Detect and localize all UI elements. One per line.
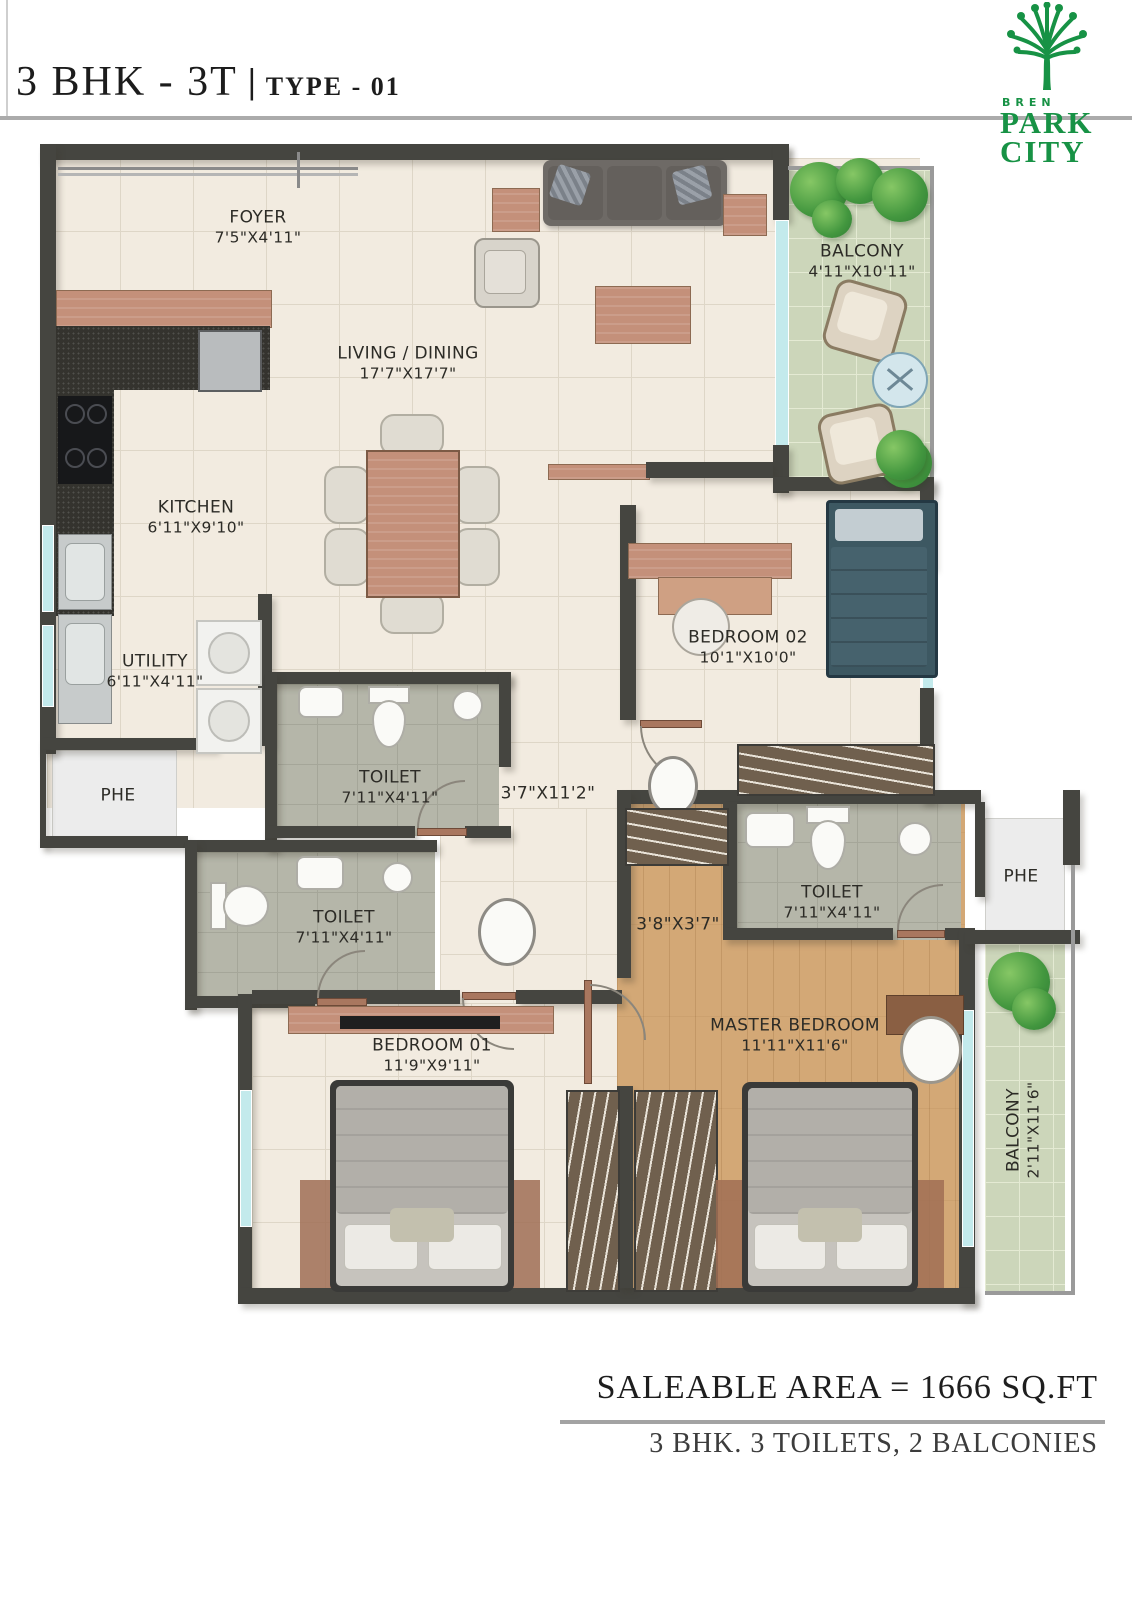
entry-slider-leaf (58, 173, 358, 176)
vanity-basin (900, 1016, 962, 1084)
rail-balcony2-right (1071, 865, 1075, 1293)
label-bedroom01: BEDROOM 0111'9"X9'11" (372, 1036, 492, 1077)
dining-chair (454, 466, 500, 524)
bed-bedroom01 (330, 1080, 514, 1292)
wall-top (40, 144, 789, 160)
toilet2-sink (296, 856, 344, 890)
label-balcony1: BALCONY4'11"X10'11" (808, 242, 915, 283)
tree-icon (995, 2, 1099, 90)
toilet3-shower-drain (898, 822, 932, 856)
wall-toilet1-right (499, 672, 511, 767)
rail-balcony2-bottom (985, 1291, 1075, 1295)
label-foyer: FOYER7'5"X4'11" (215, 208, 302, 249)
toilet3-sink (745, 812, 795, 848)
side-table-right (723, 194, 767, 236)
label-phe-left: PHE (101, 785, 136, 806)
burner (65, 404, 85, 424)
page-title: 3 BHK - 3T|TYPE - 01 (16, 58, 401, 106)
label-toilet3: TOILET7'11"X4'11" (784, 883, 881, 924)
saleable-area-text: SALEABLE AREA = 1666 SQ.FT (597, 1369, 1098, 1407)
coffee-table (595, 286, 691, 344)
page-edge-line (6, 0, 8, 116)
bolster (390, 1208, 454, 1242)
wardrobe-bedroom02 (737, 744, 935, 796)
toilet1-shower-drain (452, 690, 483, 721)
wall-toilet1-top (265, 672, 511, 684)
plan-type-title: 3 BHK - 3T (16, 59, 238, 105)
wall-toilet1-bottom-b (465, 826, 511, 838)
blanket (748, 1088, 912, 1214)
wall-toilet1-left (265, 672, 277, 850)
chair-cushion (828, 416, 882, 467)
label-phe-right: PHE (1004, 866, 1039, 887)
wall-toilet2-top (185, 840, 437, 852)
entry-slider-track (58, 167, 358, 170)
dining-table (366, 450, 460, 598)
washbasin-corridor (478, 898, 536, 966)
burner (65, 448, 85, 468)
dining-chair (454, 528, 500, 586)
kitchen-sink (58, 534, 112, 610)
refrigerator (198, 330, 262, 392)
config-summary-text: 3 BHK. 3 TOILETS, 2 BALCONIES (649, 1428, 1098, 1460)
header-divider (0, 116, 1132, 120)
window-kitchen (42, 525, 54, 612)
wall-balcony1-pillar-top (773, 144, 789, 220)
window-utility (42, 625, 54, 707)
washing-machine (196, 620, 262, 686)
wall-phe-right-bottom (965, 930, 1080, 944)
window-master-balcony (962, 1010, 974, 1247)
dryer-drum (208, 700, 250, 742)
label-master-bedroom: MASTER BEDROOM11'11"X11'6" (710, 1016, 880, 1057)
floorplan-page: 3 BHK - 3T|TYPE - 01 BREN PARK CITY (0, 0, 1132, 1600)
title-separator: | (248, 61, 256, 101)
study-desk (628, 543, 792, 579)
armchair (474, 238, 540, 308)
door-toilet1 (417, 828, 467, 836)
pillow (835, 509, 923, 541)
dining-chair (380, 592, 444, 634)
blanket (336, 1086, 508, 1214)
label-living-dining: LIVING / DINING17'7"X17'7" (337, 344, 478, 385)
wall-toilet3-bottom-a (723, 928, 893, 940)
blanket (831, 547, 927, 667)
window-living-balcony (775, 220, 789, 447)
utility-sink (58, 614, 112, 724)
toilet1-sink (298, 686, 344, 718)
plan-subtype: TYPE - 01 (266, 72, 401, 101)
armchair-cushion (484, 250, 526, 294)
door-toilet2 (317, 998, 367, 1006)
hob (58, 396, 112, 484)
side-table-left (492, 188, 540, 232)
tv (340, 1016, 500, 1029)
chair-cushion (835, 290, 889, 343)
dining-chair (324, 466, 370, 524)
window-bedroom01 (240, 1090, 252, 1227)
wardrobe-walkin (625, 808, 729, 866)
wall-toilet2-left (185, 840, 197, 1010)
plant (812, 200, 852, 238)
wardrobe-bedroom01 (566, 1090, 620, 1292)
plant (1012, 988, 1056, 1030)
plant (872, 168, 928, 222)
toilet2-shower-drain (382, 862, 413, 893)
bed-master (742, 1082, 918, 1292)
brand-name-line2: CITY (1000, 138, 1106, 167)
wall-utility-phe (40, 738, 216, 750)
label-toilet2: TOILET7'11"X4'11" (296, 908, 393, 949)
dryer (196, 688, 262, 754)
washer-drum (208, 632, 250, 674)
burner (87, 404, 107, 424)
footer-divider (560, 1420, 1105, 1424)
entry-door-marker (297, 152, 300, 188)
washbasin-passage (648, 756, 698, 816)
kitchen-shelf (56, 290, 272, 328)
dining-chair (324, 528, 370, 586)
bolster (798, 1208, 862, 1242)
wall-phe-right-left (975, 802, 985, 897)
bed-single-bedroom02 (826, 500, 938, 678)
label-bedroom02: BEDROOM 0210'1"X10'0" (688, 628, 808, 669)
wall-phe-left-bottom (40, 836, 188, 848)
door-toilet3 (897, 930, 945, 938)
brand-logo: BREN PARK CITY (988, 2, 1106, 166)
wall-bedroom02-left (620, 505, 636, 720)
plant (876, 430, 926, 480)
label-corridor-dims: 3'7"X11'2" (501, 783, 596, 804)
sofa (543, 160, 727, 226)
label-kitchen: KITCHEN6'11"X9'10" (148, 498, 245, 539)
sofa-cushion (607, 166, 662, 220)
utility-sink-basin (65, 623, 105, 685)
label-utility: UTILITY6'11"X4'11" (107, 652, 204, 693)
label-balcony2: BALCONY2'11"X11'6" (1004, 1082, 1045, 1179)
balcony-table (872, 352, 928, 408)
wall-right-pillar (1063, 790, 1080, 865)
wardrobe-master (634, 1090, 718, 1292)
wall-phe-left-outer (40, 750, 46, 845)
label-passage-dims: 3'8"X3'7" (636, 914, 720, 935)
label-toilet1: TOILET7'11"X4'11" (342, 768, 439, 809)
toilet2-wc-bowl (223, 885, 269, 927)
wall-toilet1-bottom-a (265, 826, 415, 838)
rail-balcony1-right (930, 166, 934, 488)
burner (87, 448, 107, 468)
wall-living-bedroom02 (646, 462, 773, 478)
kitchen-sink-basin (65, 543, 105, 601)
door-lintel-bedroom02 (548, 464, 650, 480)
